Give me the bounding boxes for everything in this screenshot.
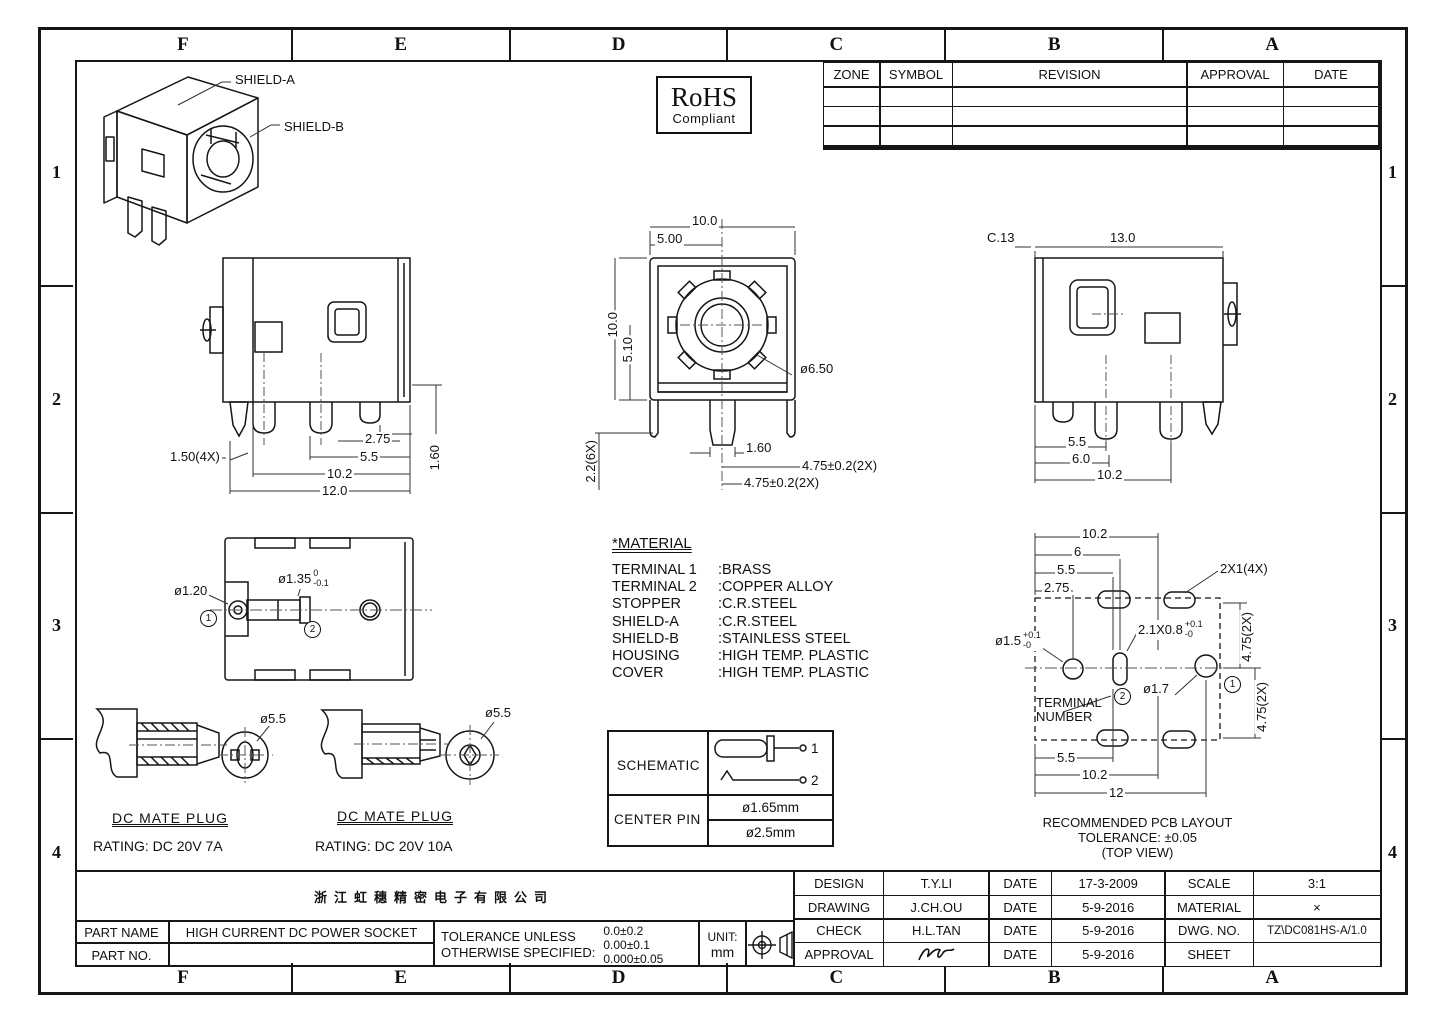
pcb-terminal-2-marker: 2: [1114, 688, 1131, 705]
pcb-terminal-1-marker: 1: [1224, 676, 1241, 693]
unit-value: mm: [711, 944, 734, 960]
tolerance-value-1: 0.0±0.2: [603, 924, 663, 938]
dim-bottom-shaft-dia: ø1.350-0.1: [276, 569, 331, 589]
dim-pcb-12: 12: [1107, 786, 1125, 800]
bottom-view-drawing: [170, 530, 465, 690]
date-label: DATE: [990, 943, 1051, 966]
role-label: DESIGN: [795, 872, 883, 895]
column-letters-top: F E D C B A: [75, 30, 1380, 60]
center-pin-value-2: ø2.5mm: [709, 825, 832, 840]
part-name-value: HIGH CURRENT DC POWER SOCKET: [170, 922, 435, 944]
title-block: 浙江虹穗精密电子有限公司 PART NAME HIGH CURRENT DC P…: [75, 870, 1380, 965]
sheet-label: SHEET: [1166, 943, 1253, 966]
column-letters-bottom: F E D C B A: [75, 963, 1380, 993]
col-letter: C: [726, 963, 944, 993]
dc-mate-plug-right-drawing: [310, 700, 510, 805]
plug-left-title: DC MATE PLUG: [112, 810, 228, 826]
dim-left-2-75: 2.75: [363, 432, 392, 446]
dim-pcb-6: 6: [1072, 545, 1083, 559]
role-name: T.Y.LI: [884, 872, 988, 895]
dim-left-10-2: 10.2: [325, 467, 354, 481]
row-number: 4: [1380, 738, 1405, 965]
dim-front-475-a: 4.75±0.2(2X): [800, 459, 879, 473]
dim-front-22-6x: 2.2(6X): [584, 438, 598, 485]
material-value: ×: [1254, 896, 1380, 919]
dim-plug-left-dia: ø5.5: [258, 712, 288, 726]
terminal-1-marker: 1: [200, 610, 217, 627]
table-divider: [707, 819, 832, 821]
role-label: DRAWING: [795, 896, 883, 919]
revision-empty-cell: [1284, 127, 1378, 145]
pcb-terminal-number-label: NUMBER: [1034, 710, 1094, 724]
plug-right-rating: RATING: DC 20V 10A: [315, 838, 452, 854]
date-label: DATE: [990, 872, 1051, 895]
dim-bottom-pin-dia: ø1.20: [172, 584, 209, 598]
unit-cell: UNIT: mm: [700, 922, 747, 967]
material-row: TERMINAL 2:COPPER ALLOY: [612, 579, 942, 596]
pcb-terminal-number-label: TERMINAL: [1034, 696, 1104, 710]
material-row: TERMINAL 1:BRASS: [612, 562, 942, 579]
schematic-table: SCHEMATIC CENTER PIN 1 2 ø1.65mm ø2.5mm: [607, 730, 834, 847]
dim-left-5-5: 5.5: [358, 450, 380, 464]
row-number: 3: [1380, 512, 1405, 739]
dc-mate-plug-left-drawing: [85, 705, 285, 805]
dim-pcb-475-a: 4.75(2X): [1240, 610, 1254, 664]
row-number: 1: [40, 60, 73, 285]
material-row: STOPPER:C.R.STEEL: [612, 596, 942, 613]
revision-header: APPROVAL: [1188, 63, 1283, 86]
dim-pcb-slot-size: 2.1X0.8+0.1-0: [1136, 620, 1205, 640]
material-row: HOUSING:HIGH TEMP. PLASTIC: [612, 648, 942, 665]
part-name-label: PART NAME: [75, 922, 170, 944]
pcb-caption-2: TOLERANCE: ±0.05: [1030, 830, 1245, 845]
row-number: 3: [40, 512, 73, 739]
part-no-value: [170, 944, 435, 967]
dim-right-6-0: 6.0: [1070, 452, 1092, 466]
revision-empty-cell: [824, 88, 879, 106]
dim-pcb-2-75: 2.75: [1042, 581, 1071, 595]
scale-label: SCALE: [1166, 872, 1253, 895]
dim-pcb-5-5-bottom: 5.5: [1055, 751, 1077, 765]
dim-plug-right-dia: ø5.5: [483, 706, 513, 720]
side-view-right-drawing: [985, 225, 1315, 490]
dim-pcb-475-b: 4.75(2X): [1255, 680, 1269, 734]
revision-header: DATE: [1284, 63, 1378, 86]
date-value: 5-9-2016: [1052, 896, 1164, 919]
revision-empty-cell: [1188, 127, 1283, 145]
revision-header: REVISION: [953, 63, 1186, 86]
engineering-drawing-sheet: F E D C B A F E D C B A 1 2 3 4 1 2 3 4 …: [0, 0, 1446, 1022]
signature-icon: [915, 944, 957, 964]
dim-front-height: 10.0: [606, 310, 620, 339]
dim-left-1-50-4x: 1.50(4X): [168, 450, 222, 464]
dim-front-hole-dia: ø6.50: [798, 362, 835, 376]
dim-front-half-height: 5.10: [621, 335, 635, 364]
unit-label: UNIT:: [708, 930, 738, 944]
row-number: 2: [40, 285, 73, 512]
dim-front-half-width: 5.00: [655, 232, 684, 246]
col-letter: D: [509, 30, 727, 60]
row-numbers-right: 1 2 3 4: [1380, 60, 1405, 965]
row-numbers-left: 1 2 3 4: [40, 60, 73, 965]
tol-lower: -0.1: [313, 579, 329, 589]
col-letter: B: [944, 963, 1162, 993]
schematic-row-label: SCHEMATIC: [617, 758, 700, 773]
revision-header: SYMBOL: [881, 63, 952, 86]
rohs-stamp: RoHS Compliant: [656, 76, 752, 134]
row-number: 2: [1380, 285, 1405, 512]
revision-empty-cell: [1284, 88, 1378, 106]
date-value: 17-3-2009: [1052, 872, 1164, 895]
dim-pcb-10-2-top: 10.2: [1080, 527, 1109, 541]
date-value: 5-9-2016: [1052, 920, 1164, 942]
sheet-value: [1254, 943, 1380, 966]
table-divider: [609, 794, 832, 796]
pcb-caption-3: (TOP VIEW): [1030, 845, 1245, 860]
center-pin-row-label: CENTER PIN: [614, 812, 701, 827]
col-letter: D: [509, 963, 727, 993]
revision-header: ZONE: [824, 63, 879, 86]
col-letter: F: [75, 30, 291, 60]
dim-left-1-60: 1.60: [428, 443, 442, 472]
dim-right-10-2: 10.2: [1095, 468, 1124, 482]
dwg-no-label: DWG. NO.: [1166, 920, 1253, 942]
revision-empty-cell: [824, 127, 879, 145]
revision-empty-cell: [1188, 88, 1283, 106]
terminal-2-marker: 2: [304, 621, 321, 638]
revision-empty-cell: [1284, 107, 1378, 125]
scale-value: 3:1: [1254, 872, 1380, 895]
dim-front-pin: 1.60: [744, 441, 773, 455]
plug-left-rating: RATING: DC 20V 7A: [93, 838, 223, 854]
col-letter: E: [291, 963, 509, 993]
projection-symbol-cell: [747, 922, 795, 967]
material-row: SHIELD-B:STAINLESS STEEL: [612, 631, 942, 648]
dim-pcb-10-2-bottom: 10.2: [1080, 768, 1109, 782]
revision-empty-cell: [881, 88, 952, 106]
col-letter: E: [291, 30, 509, 60]
role-name: H.L.TAN: [884, 920, 988, 942]
dim-front-width: 10.0: [690, 214, 719, 228]
dim-right-c13: C.13: [985, 231, 1016, 245]
tolerance-line-1: TOLERANCE UNLESS: [441, 929, 595, 945]
col-letter: A: [1162, 963, 1380, 993]
isometric-view-drawing: [90, 65, 320, 245]
dwg-no-value: TZ\DC081HS-A/1.0: [1254, 920, 1380, 942]
rohs-title: RoHS: [671, 84, 737, 111]
tolerance-value-3: 0.000±0.05: [603, 952, 663, 966]
col-letter: A: [1162, 30, 1380, 60]
col-letter: C: [726, 30, 944, 60]
revision-empty-cell: [881, 107, 952, 125]
dim-pcb-hole2-dia: ø1.7: [1141, 682, 1171, 696]
iso-label-shield-a: SHIELD-A: [233, 73, 297, 87]
material-title: *MATERIAL: [612, 535, 942, 552]
date-label: DATE: [990, 896, 1051, 919]
material-label: MATERIAL: [1166, 896, 1253, 919]
revision-empty-cell: [881, 127, 952, 145]
material-row: COVER:HIGH TEMP. PLASTIC: [612, 665, 942, 682]
revision-table: ZONE SYMBOL REVISION APPROVAL DATE: [823, 62, 1382, 150]
pcb-caption-1: RECOMMENDED PCB LAYOUT: [1030, 815, 1245, 830]
dim-right-5-5: 5.5: [1066, 435, 1088, 449]
material-list: *MATERIAL TERMINAL 1:BRASS TERMINAL 2:CO…: [612, 535, 942, 682]
row-number: 1: [1380, 60, 1405, 285]
iso-label-shield-b: SHIELD-B: [282, 120, 346, 134]
revision-empty-cell: [953, 88, 1186, 106]
role-name: J.CH.OU: [884, 896, 988, 919]
dim-right-13-0: 13.0: [1108, 231, 1137, 245]
center-pin-value-1: ø1.65mm: [709, 800, 832, 815]
schematic-pin1-label: 1: [811, 741, 819, 756]
dim-pcb-pad-size: 2X1(4X): [1218, 562, 1270, 576]
date-label: DATE: [990, 920, 1051, 942]
company-name: 浙江虹穗精密电子有限公司: [75, 872, 795, 922]
date-value: 5-9-2016: [1052, 943, 1164, 966]
revision-empty-cell: [824, 107, 879, 125]
plug-right-title: DC MATE PLUG: [337, 808, 453, 824]
dim-left-12-0: 12.0: [320, 484, 349, 498]
approval-signature-cell: [884, 943, 988, 966]
revision-empty-cell: [953, 127, 1186, 145]
col-letter: B: [944, 30, 1162, 60]
tolerance-line-2: OTHERWISE SPECIFIED:: [441, 945, 595, 961]
role-label: APPROVAL: [795, 943, 883, 966]
revision-empty-cell: [1188, 107, 1283, 125]
tolerance-value-2: 0.00±0.1: [603, 938, 663, 952]
tolerance-note: TOLERANCE UNLESS OTHERWISE SPECIFIED: 0.…: [435, 922, 700, 967]
dim-value: ø1.35: [278, 572, 311, 586]
part-no-label: PART NO.: [75, 944, 170, 967]
dim-pcb-5-5-top: 5.5: [1055, 563, 1077, 577]
schematic-pin2-label: 2: [811, 773, 819, 788]
third-angle-projection-icon: [747, 925, 793, 965]
row-number: 4: [40, 738, 73, 965]
approval-table: DESIGN T.Y.LI DATE 17-3-2009 SCALE 3:1 D…: [795, 872, 1380, 967]
material-row: SHIELD-A:C.R.STEEL: [612, 614, 942, 631]
rohs-subtitle: Compliant: [672, 111, 735, 127]
role-label: CHECK: [795, 920, 883, 942]
dim-front-475-b: 4.75±0.2(2X): [742, 476, 821, 490]
revision-empty-cell: [953, 107, 1186, 125]
dim-pcb-hole-dia: ø1.5+0.1-0: [993, 631, 1043, 651]
col-letter: F: [75, 963, 291, 993]
